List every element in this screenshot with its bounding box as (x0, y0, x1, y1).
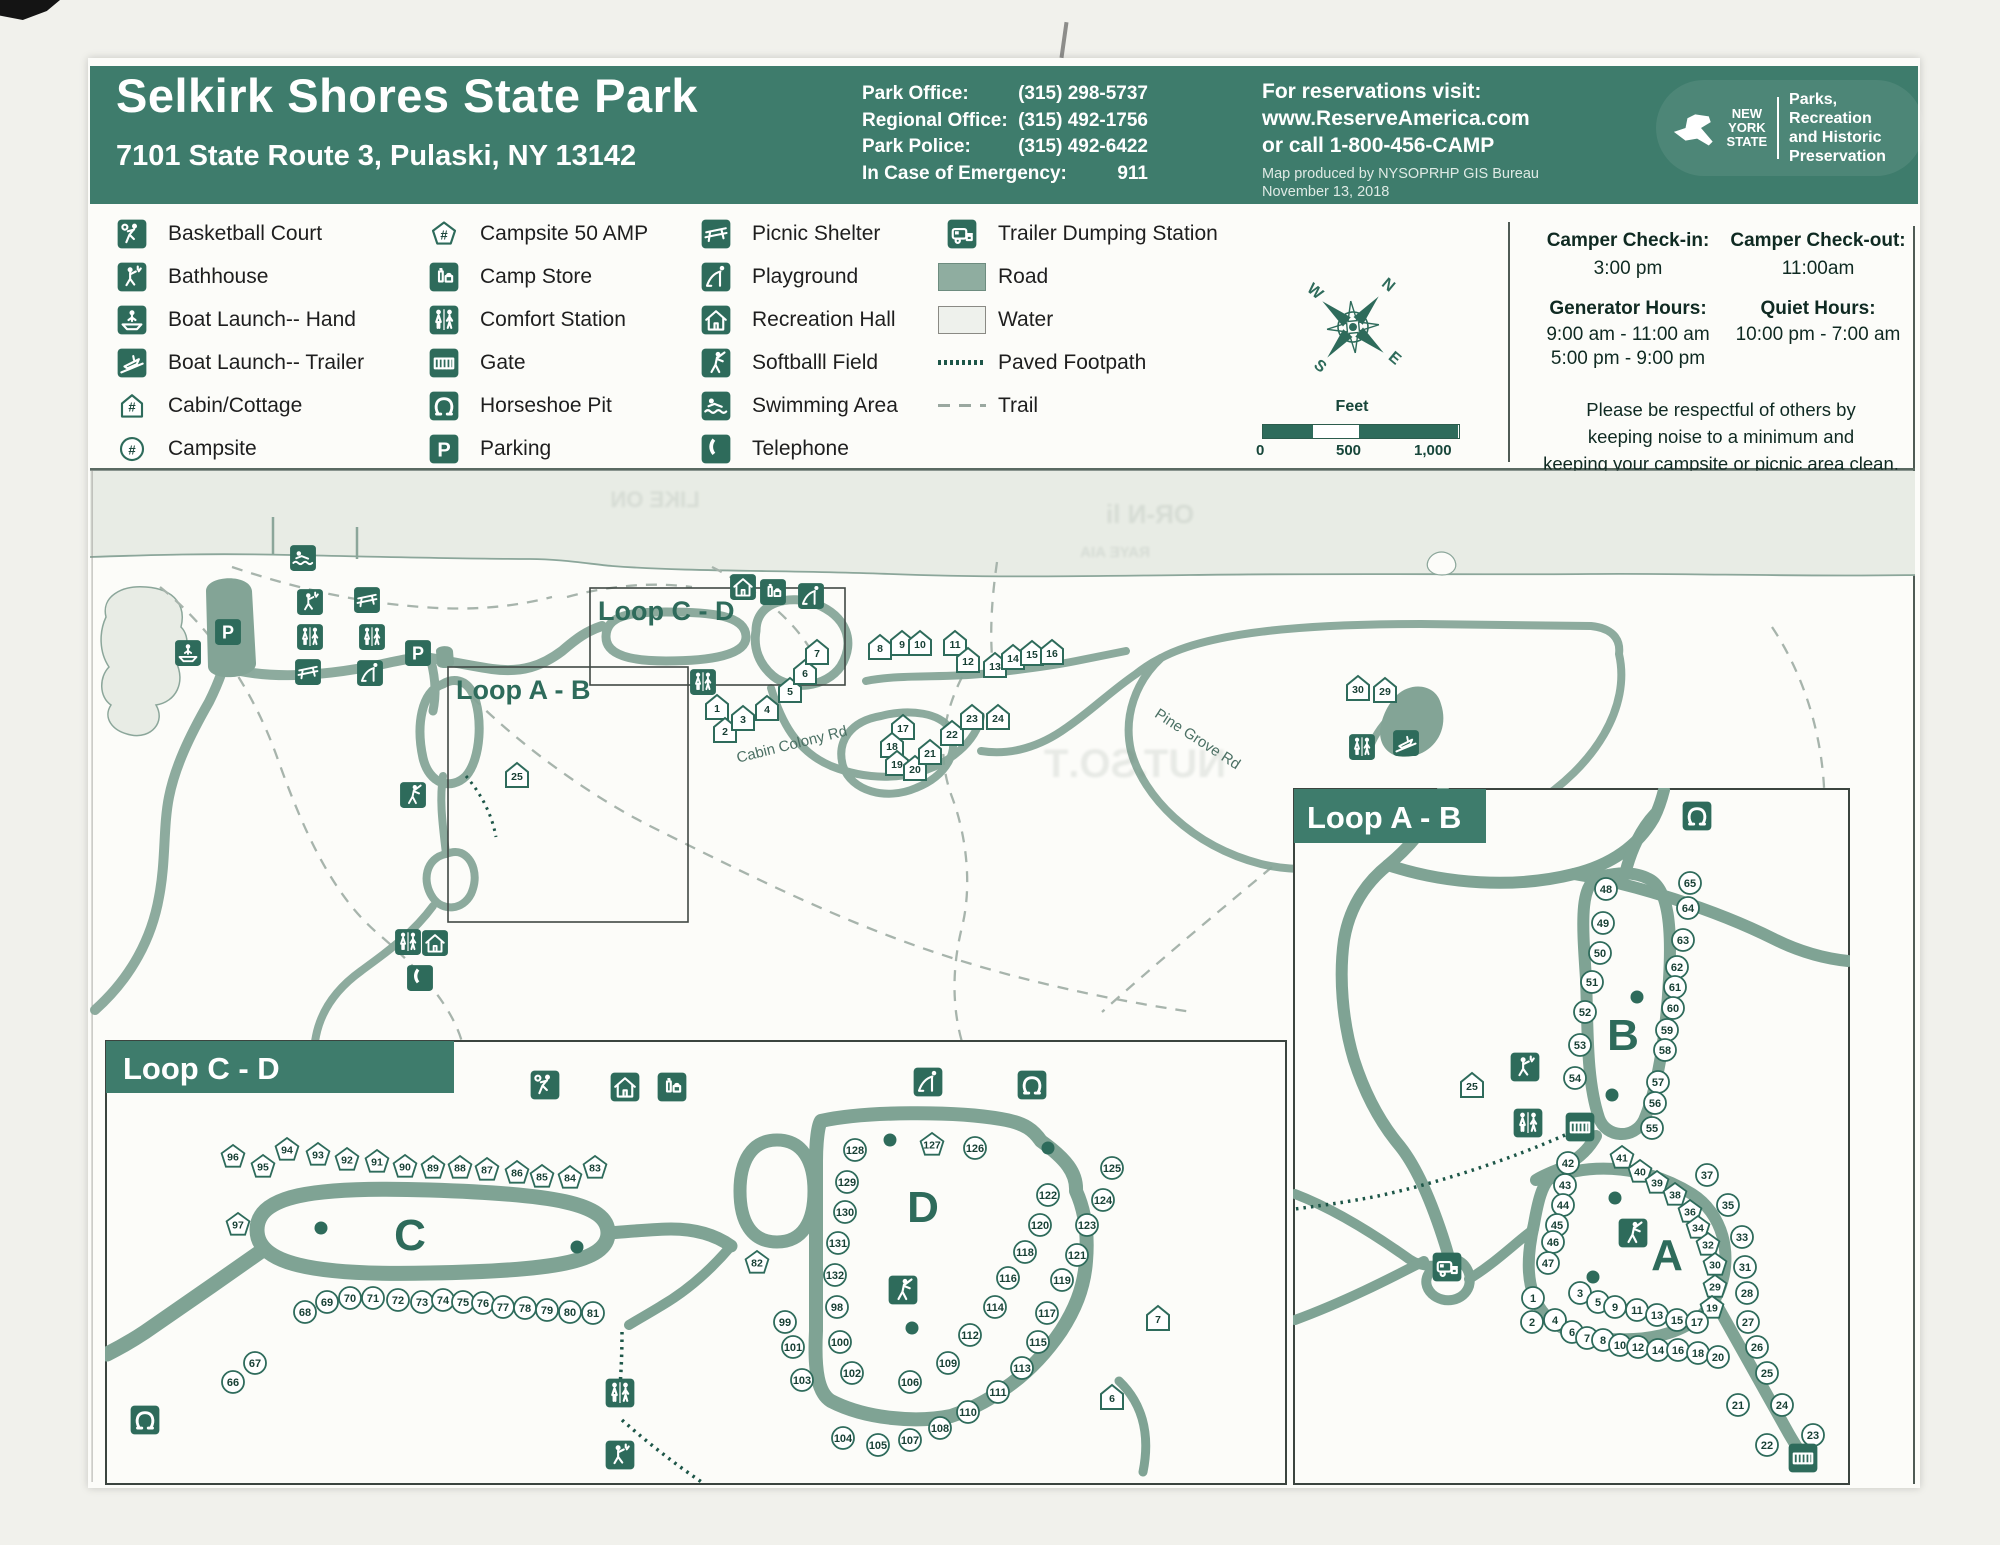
svg-text:15: 15 (1671, 1315, 1683, 1327)
svg-text:21: 21 (1732, 1400, 1744, 1412)
paved-footpath (466, 776, 496, 837)
svg-text:P: P (437, 439, 450, 461)
horseshoe-icon (1018, 1071, 1047, 1100)
campsite-marker-117: 117 (1036, 1302, 1058, 1324)
campsite-marker-37: 37 (1696, 1164, 1718, 1186)
legend-item-softballl-field: Softballl Field (692, 341, 898, 384)
campsite-marker-61: 61 (1664, 976, 1686, 998)
campsite-marker-119: 119 (1051, 1269, 1073, 1291)
legend-label: Parking (480, 437, 551, 461)
svg-text:111: 111 (989, 1387, 1006, 1399)
svg-text:16: 16 (1672, 1345, 1684, 1357)
svg-text:69: 69 (321, 1297, 333, 1309)
swim-icon (290, 545, 316, 571)
map-dot (1042, 1142, 1055, 1155)
legend-label: Softballl Field (752, 351, 878, 375)
campsite-marker-64: 64 (1677, 897, 1699, 919)
svg-text:132: 132 (826, 1270, 844, 1282)
legend-item-bathhouse: Bathhouse (108, 255, 364, 298)
legend-item-telephone: Telephone (692, 427, 898, 470)
svg-text:103: 103 (793, 1375, 811, 1387)
svg-text:6: 6 (1569, 1327, 1575, 1339)
svg-text:37: 37 (1701, 1170, 1713, 1182)
svg-text:79: 79 (541, 1305, 553, 1317)
legend-label: Campsite 50 AMP (480, 222, 648, 246)
svg-text:19: 19 (1706, 1303, 1718, 1315)
campsite-marker-77: 77 (492, 1296, 514, 1318)
logo-dept-text: Parks, Recreation and Historic Preservat… (1789, 90, 1910, 166)
campsite-marker-122: 122 (1037, 1184, 1059, 1206)
legend-item-comfort-station: Comfort Station (420, 298, 648, 341)
campsite-marker-111: 111 (987, 1381, 1009, 1403)
svg-text:5: 5 (1595, 1297, 1601, 1309)
campsite-marker-52: 52 (1574, 1001, 1596, 1023)
svg-text:123: 123 (1078, 1220, 1096, 1232)
dump-icon (938, 219, 986, 249)
compass-letter-N: N (1378, 275, 1398, 295)
parking-icon: P (215, 619, 241, 645)
legend-item-trail: Trail (938, 384, 1218, 427)
svg-text:29: 29 (1379, 686, 1391, 698)
cabin-marker-10: 10 (909, 631, 931, 655)
svg-text:85: 85 (536, 1172, 548, 1184)
campsite-marker-67: 67 (244, 1352, 266, 1374)
basketball-icon (108, 219, 156, 249)
svg-text:41: 41 (1616, 1153, 1628, 1165)
page-title: Selkirk Shores State Park (116, 68, 698, 123)
svg-text:113: 113 (1013, 1363, 1031, 1375)
dump-icon (1433, 1253, 1462, 1282)
campsite-marker-35: 35 (1717, 1194, 1739, 1216)
loop-cd-inset-map: Loop C - D 96959493929190898887868584839… (105, 1040, 1287, 1485)
svg-text:66: 66 (227, 1377, 239, 1389)
gate-icon (1566, 1113, 1595, 1142)
campsite-marker-49: 49 (1592, 912, 1614, 934)
campsite-marker-120: 120 (1029, 1214, 1051, 1236)
svg-text:28: 28 (1741, 1288, 1753, 1300)
campsite-marker-44: 44 (1552, 1194, 1574, 1216)
svg-text:95: 95 (257, 1162, 269, 1174)
nys-parks-logo: NEW YORK STATE Parks, Recreation and His… (1656, 80, 1924, 176)
scan-crease-mark (1060, 22, 1069, 58)
svg-text:30: 30 (1352, 684, 1364, 696)
campsite-marker-16: 16 (1667, 1339, 1689, 1361)
svg-text:63: 63 (1677, 935, 1689, 947)
svg-text:34: 34 (1692, 1223, 1704, 1235)
campsite-marker-28: 28 (1736, 1282, 1758, 1304)
campsite-marker-51: 51 (1581, 971, 1603, 993)
quiet-hours-block: Quiet Hours: 10:00 pm - 7:00 am (1722, 298, 1914, 346)
boat-trailer-icon (1393, 730, 1419, 756)
campsite-marker-54: 54 (1564, 1067, 1586, 1089)
svg-text:57: 57 (1652, 1077, 1664, 1089)
svg-text:58: 58 (1659, 1045, 1671, 1057)
legend-label: Boat Launch-- Hand (168, 308, 356, 332)
campsite-marker-65: 65 (1679, 872, 1701, 894)
campsite50-icon: # (420, 219, 468, 249)
contact-row: Park Office:(315) 298-5737 (862, 81, 1148, 108)
svg-text:25: 25 (1761, 1368, 1773, 1380)
campsite-marker-57: 57 (1647, 1071, 1669, 1093)
scan-artifact-mark (0, 0, 60, 20)
legend-label: Trailer Dumping Station (998, 222, 1218, 246)
svg-text:21: 21 (924, 748, 936, 760)
bathhouse-icon (297, 589, 323, 615)
loop-letter-D: D (907, 1183, 939, 1232)
bathhouse-icon (1511, 1053, 1540, 1082)
campsite-marker-70: 70 (339, 1287, 361, 1309)
svg-text:P: P (222, 623, 234, 643)
campstore-icon (420, 262, 468, 292)
camper-checkout-block: Camper Check-out: 11:00am (1722, 230, 1914, 280)
campsite-marker-23: 23 (1802, 1424, 1824, 1446)
map-dot (1587, 1271, 1600, 1284)
svg-text:11: 11 (1631, 1305, 1643, 1317)
scalebar-tick: 0 (1256, 442, 1264, 459)
svg-text:48: 48 (1600, 884, 1612, 896)
svg-text:25: 25 (1466, 1081, 1478, 1093)
campsite-marker-12: 12 (1627, 1336, 1649, 1358)
campsite-marker-31: 31 (1734, 1256, 1756, 1278)
svg-text:#: # (128, 399, 136, 414)
svg-text:62: 62 (1671, 962, 1683, 974)
loop-cd-box-label: Loop C - D (598, 596, 734, 626)
svg-text:129: 129 (838, 1177, 856, 1189)
svg-text:112: 112 (961, 1330, 979, 1342)
comfort-icon (420, 305, 468, 335)
campsite-marker-113: 113 (1011, 1357, 1033, 1379)
svg-text:4: 4 (1552, 1315, 1559, 1327)
picnic-icon (295, 659, 321, 685)
campsite-marker-112: 112 (959, 1324, 981, 1346)
campstore-icon (760, 579, 786, 605)
contact-value: (315) 492-1756 (1018, 108, 1148, 135)
bathhouse-icon (108, 262, 156, 292)
campsite-marker-1: 1 (1522, 1287, 1544, 1309)
campsite-marker-126: 126 (964, 1137, 986, 1159)
reservations-url: www.ReserveAmerica.com (1262, 105, 1539, 132)
campsite-marker-66: 66 (222, 1371, 244, 1393)
svg-text:6: 6 (802, 668, 808, 680)
svg-text:126: 126 (966, 1143, 984, 1155)
map-dot (906, 1322, 919, 1335)
legend-item-parking: PParking (420, 427, 648, 470)
svg-text:96: 96 (227, 1152, 239, 1164)
legend-label: Gate (480, 351, 526, 375)
svg-text:14: 14 (1652, 1345, 1665, 1357)
svg-text:3: 3 (740, 714, 746, 726)
svg-text:124: 124 (1094, 1195, 1113, 1207)
inset-ab-title: Loop A - B (1307, 800, 1461, 835)
svg-text:23: 23 (966, 713, 978, 725)
park-address: 7101 State Route 3, Pulaski, NY 13142 (116, 140, 636, 173)
legend-item-camp-store: Camp Store (420, 255, 648, 298)
svg-text:9: 9 (1612, 1302, 1618, 1314)
produced-by: Map produced by NYSOPRHP GIS Bureau Nove… (1262, 165, 1539, 201)
svg-text:17: 17 (897, 723, 909, 735)
campsite-marker-118: 118 (1014, 1241, 1036, 1263)
cabin-marker-3: 3 (732, 706, 754, 730)
logo-divider (1777, 97, 1779, 159)
svg-text:98: 98 (831, 1302, 843, 1314)
picnic-icon (692, 219, 740, 249)
campsite-marker-131: 131 (827, 1232, 849, 1254)
map-dot (1631, 991, 1644, 1004)
campsite-marker-42: 42 (1557, 1152, 1579, 1174)
svg-text:92: 92 (341, 1155, 353, 1167)
svg-text:104: 104 (834, 1433, 853, 1445)
campsite-marker-124: 124 (1092, 1189, 1114, 1211)
logo-state-text: NEW YORK STATE (1727, 107, 1768, 149)
parking-lot-area (436, 646, 454, 668)
map-dot (884, 1134, 897, 1147)
comfort-icon (395, 929, 421, 955)
rechall-icon (692, 305, 740, 335)
reservations-phone: or call 1-800-456-CAMP (1262, 132, 1539, 159)
legend-item-trailer-dumping-station: Trailer Dumping Station (938, 212, 1218, 255)
campsite-marker-25: 25 (1756, 1362, 1778, 1384)
svg-text:33: 33 (1736, 1232, 1748, 1244)
svg-text:109: 109 (939, 1358, 957, 1370)
legend-item-campsite: #Campsite (108, 427, 364, 470)
svg-text:22: 22 (946, 729, 958, 741)
svg-text:36: 36 (1684, 1207, 1696, 1219)
svg-text:86: 86 (511, 1168, 523, 1180)
campsite-marker-11: 11 (1626, 1299, 1648, 1321)
campsite-marker-73: 73 (411, 1291, 433, 1313)
legend-item-paved-footpath: Paved Footpath (938, 341, 1218, 384)
campsite-marker-2: 2 (1521, 1311, 1543, 1333)
svg-text:27: 27 (1742, 1317, 1754, 1329)
contact-label: Park Police: (862, 134, 971, 161)
svg-text:7: 7 (814, 648, 820, 660)
map-dot (571, 1241, 584, 1254)
compass-letter-E: E (1385, 349, 1404, 369)
telephone-icon (692, 434, 740, 464)
svg-text:3: 3 (1577, 1288, 1583, 1300)
legend-item-swimming-area: Swimming Area (692, 384, 898, 427)
contact-value: (315) 492-6422 (1018, 134, 1148, 161)
loop-ab-extent-box (448, 667, 688, 922)
svg-text:115: 115 (1029, 1337, 1047, 1349)
legend-label: Bathhouse (168, 265, 268, 289)
svg-text:56: 56 (1649, 1098, 1661, 1110)
cabin-marker-21: 21 (919, 740, 941, 764)
legend-item-picnic-shelter: Picnic Shelter (692, 212, 898, 255)
contact-label: In Case of Emergency: (862, 161, 1067, 188)
legend-item-boat-launch-hand: Boat Launch-- Hand (108, 298, 364, 341)
scalebar-tick: 1,000 (1414, 442, 1452, 459)
contact-label: Regional Office: (862, 108, 1008, 135)
svg-text:32: 32 (1702, 1240, 1714, 1252)
svg-text:53: 53 (1574, 1040, 1586, 1052)
cabin-marker-24: 24 (987, 705, 1009, 729)
svg-text:19: 19 (891, 759, 903, 771)
legend-item-boat-launch-trailer: Boat Launch-- Trailer (108, 341, 364, 384)
bathhouse-icon (606, 1441, 635, 1470)
svg-text:76: 76 (477, 1298, 489, 1310)
bleed-through-text: NUT.SO.T (1044, 742, 1226, 786)
svg-text:118: 118 (1016, 1247, 1034, 1259)
basketball-icon (531, 1071, 560, 1100)
contact-row: Park Police:(315) 492-6422 (862, 134, 1148, 161)
svg-text:127: 127 (923, 1140, 941, 1152)
reservations-block: For reservations visit: www.ReserveAmeri… (1262, 78, 1539, 201)
comfort-icon (359, 624, 385, 650)
svg-text:73: 73 (416, 1297, 428, 1309)
legend-label: Telephone (752, 437, 849, 461)
svg-text:#: # (440, 227, 448, 242)
svg-text:12: 12 (962, 656, 974, 668)
svg-text:18: 18 (1692, 1348, 1704, 1360)
legend-item-playground: Playground (692, 255, 898, 298)
campstore-icon (658, 1073, 687, 1102)
campsite-marker-78: 78 (514, 1297, 536, 1319)
rechall-icon (422, 930, 448, 956)
legend-column-2: #Campsite 50 AMPCamp StoreComfort Statio… (420, 212, 648, 470)
contact-value: (315) 298-5737 (1018, 81, 1148, 108)
legend-item-gate: Gate (420, 341, 648, 384)
legend-item-cabin-cottage: #Cabin/Cottage (108, 384, 364, 427)
svg-text:13: 13 (989, 661, 1001, 673)
boat-hand-icon (108, 305, 156, 335)
loop-ab-inset-map: Loop A - B 41403938363432302919484950515… (1293, 788, 1850, 1485)
legend-label: Camp Store (480, 265, 592, 289)
svg-text:100: 100 (831, 1337, 849, 1349)
svg-text:108: 108 (931, 1423, 949, 1435)
svg-text:55: 55 (1646, 1123, 1658, 1135)
cabin-marker-16: 16 (1041, 640, 1063, 664)
softball-icon (889, 1276, 918, 1305)
swim-icon (692, 391, 740, 421)
campsite-marker-108: 108 (929, 1417, 951, 1439)
parking-icon: P (420, 434, 468, 464)
campsite-marker-110: 110 (957, 1401, 979, 1423)
legend-item-water: Water (938, 298, 1218, 341)
campsite-marker-69: 69 (316, 1291, 338, 1313)
svg-text:93: 93 (312, 1150, 324, 1162)
contact-row: In Case of Emergency:911 (862, 161, 1148, 188)
svg-text:38: 38 (1669, 1190, 1681, 1202)
svg-text:8: 8 (1600, 1335, 1606, 1347)
svg-text:17: 17 (1691, 1317, 1703, 1329)
campsite-marker-130: 130 (834, 1201, 856, 1223)
svg-text:54: 54 (1569, 1073, 1582, 1085)
bleed-through-text: LIKE ON (610, 487, 699, 512)
svg-text:4: 4 (764, 704, 770, 716)
campsite-marker-62: 62 (1666, 956, 1688, 978)
campsite-marker-20: 20 (1707, 1346, 1729, 1368)
campsite-marker-33: 33 (1731, 1226, 1753, 1248)
bleed-through-text: RAYE AIA (1080, 544, 1150, 561)
campsite-marker-98: 98 (826, 1296, 848, 1318)
pond-water (101, 587, 187, 736)
svg-text:87: 87 (481, 1165, 493, 1177)
svg-text:91: 91 (371, 1157, 383, 1169)
svg-text:89: 89 (427, 1163, 439, 1175)
svg-text:13: 13 (1651, 1310, 1663, 1322)
cabin-marker-23: 23 (961, 705, 983, 729)
legend-label: Swimming Area (752, 394, 898, 418)
parking-icon: P (405, 640, 431, 666)
svg-text:72: 72 (392, 1295, 404, 1307)
campsite-marker-121: 121 (1066, 1244, 1088, 1266)
horseshoe-icon (1683, 802, 1712, 831)
loop-letter-B: B (1607, 1011, 1639, 1060)
svg-text:119: 119 (1053, 1275, 1071, 1287)
svg-text:2: 2 (722, 726, 728, 738)
park-map-sheet: Selkirk Shores State Park 7101 State Rou… (0, 0, 2000, 1545)
svg-text:82: 82 (751, 1258, 763, 1270)
contact-row: Regional Office:(315) 492-1756 (862, 108, 1148, 135)
generator-hours-block: Generator Hours: 9:00 am - 11:00 am 5:00… (1528, 298, 1728, 370)
map-left-border (92, 470, 93, 1482)
campsite-marker-68: 68 (294, 1301, 316, 1323)
legend-label: Basketball Court (168, 222, 322, 246)
trail-line-icon (938, 404, 986, 407)
cabin-marker-29: 29 (1374, 678, 1396, 702)
campsite-marker-75: 75 (452, 1291, 474, 1313)
campsite-marker-107: 107 (899, 1429, 921, 1451)
comfort-icon (1514, 1109, 1543, 1138)
campsite-marker-72: 72 (387, 1289, 409, 1311)
shore-cove (1427, 552, 1455, 575)
svg-text:11: 11 (949, 639, 960, 651)
ny-state-shape-icon (1670, 102, 1717, 154)
campsite-marker-101: 101 (782, 1336, 804, 1358)
softball-icon (692, 348, 740, 378)
playground-icon (357, 660, 383, 686)
svg-text:12: 12 (1632, 1342, 1644, 1354)
contact-label: Park Office: (862, 81, 969, 108)
svg-text:9: 9 (899, 639, 905, 651)
playground-icon (914, 1068, 943, 1097)
svg-text:35: 35 (1722, 1200, 1734, 1212)
campsite-marker-26: 26 (1746, 1336, 1768, 1358)
svg-text:42: 42 (1562, 1158, 1574, 1170)
legend-label: Picnic Shelter (752, 222, 880, 246)
legend-label: Water (998, 308, 1053, 332)
loop-ab-box-label: Loop A - B (456, 675, 590, 705)
comfort-icon (606, 1379, 635, 1408)
svg-text:49: 49 (1597, 918, 1609, 930)
legend-label: Recreation Hall (752, 308, 896, 332)
svg-text:46: 46 (1547, 1237, 1559, 1249)
svg-text:130: 130 (836, 1207, 854, 1219)
campsite-marker-58: 58 (1654, 1039, 1676, 1061)
campsite-marker-103: 103 (791, 1369, 813, 1391)
scalebar (1262, 424, 1460, 439)
campsite-marker-17: 17 (1686, 1311, 1708, 1333)
campsite-marker-24: 24 (1771, 1394, 1793, 1416)
svg-text:23: 23 (1807, 1430, 1819, 1442)
softball-icon (400, 782, 426, 808)
legend-label: Paved Footpath (998, 351, 1146, 375)
boat-hand-icon (175, 640, 201, 666)
svg-text:8: 8 (877, 643, 883, 655)
gate-icon (1789, 1444, 1818, 1473)
loop-letter-A: A (1651, 1231, 1683, 1280)
scalebar-tick: 500 (1336, 442, 1361, 459)
gate-icon (420, 348, 468, 378)
svg-text:74: 74 (437, 1295, 450, 1307)
svg-text:94: 94 (281, 1145, 293, 1157)
legend-item-basketball-court: Basketball Court (108, 212, 364, 255)
legend-label: Cabin/Cottage (168, 394, 302, 418)
comfort-icon (690, 669, 716, 695)
svg-text:40: 40 (1634, 1167, 1646, 1179)
svg-text:51: 51 (1586, 977, 1598, 989)
